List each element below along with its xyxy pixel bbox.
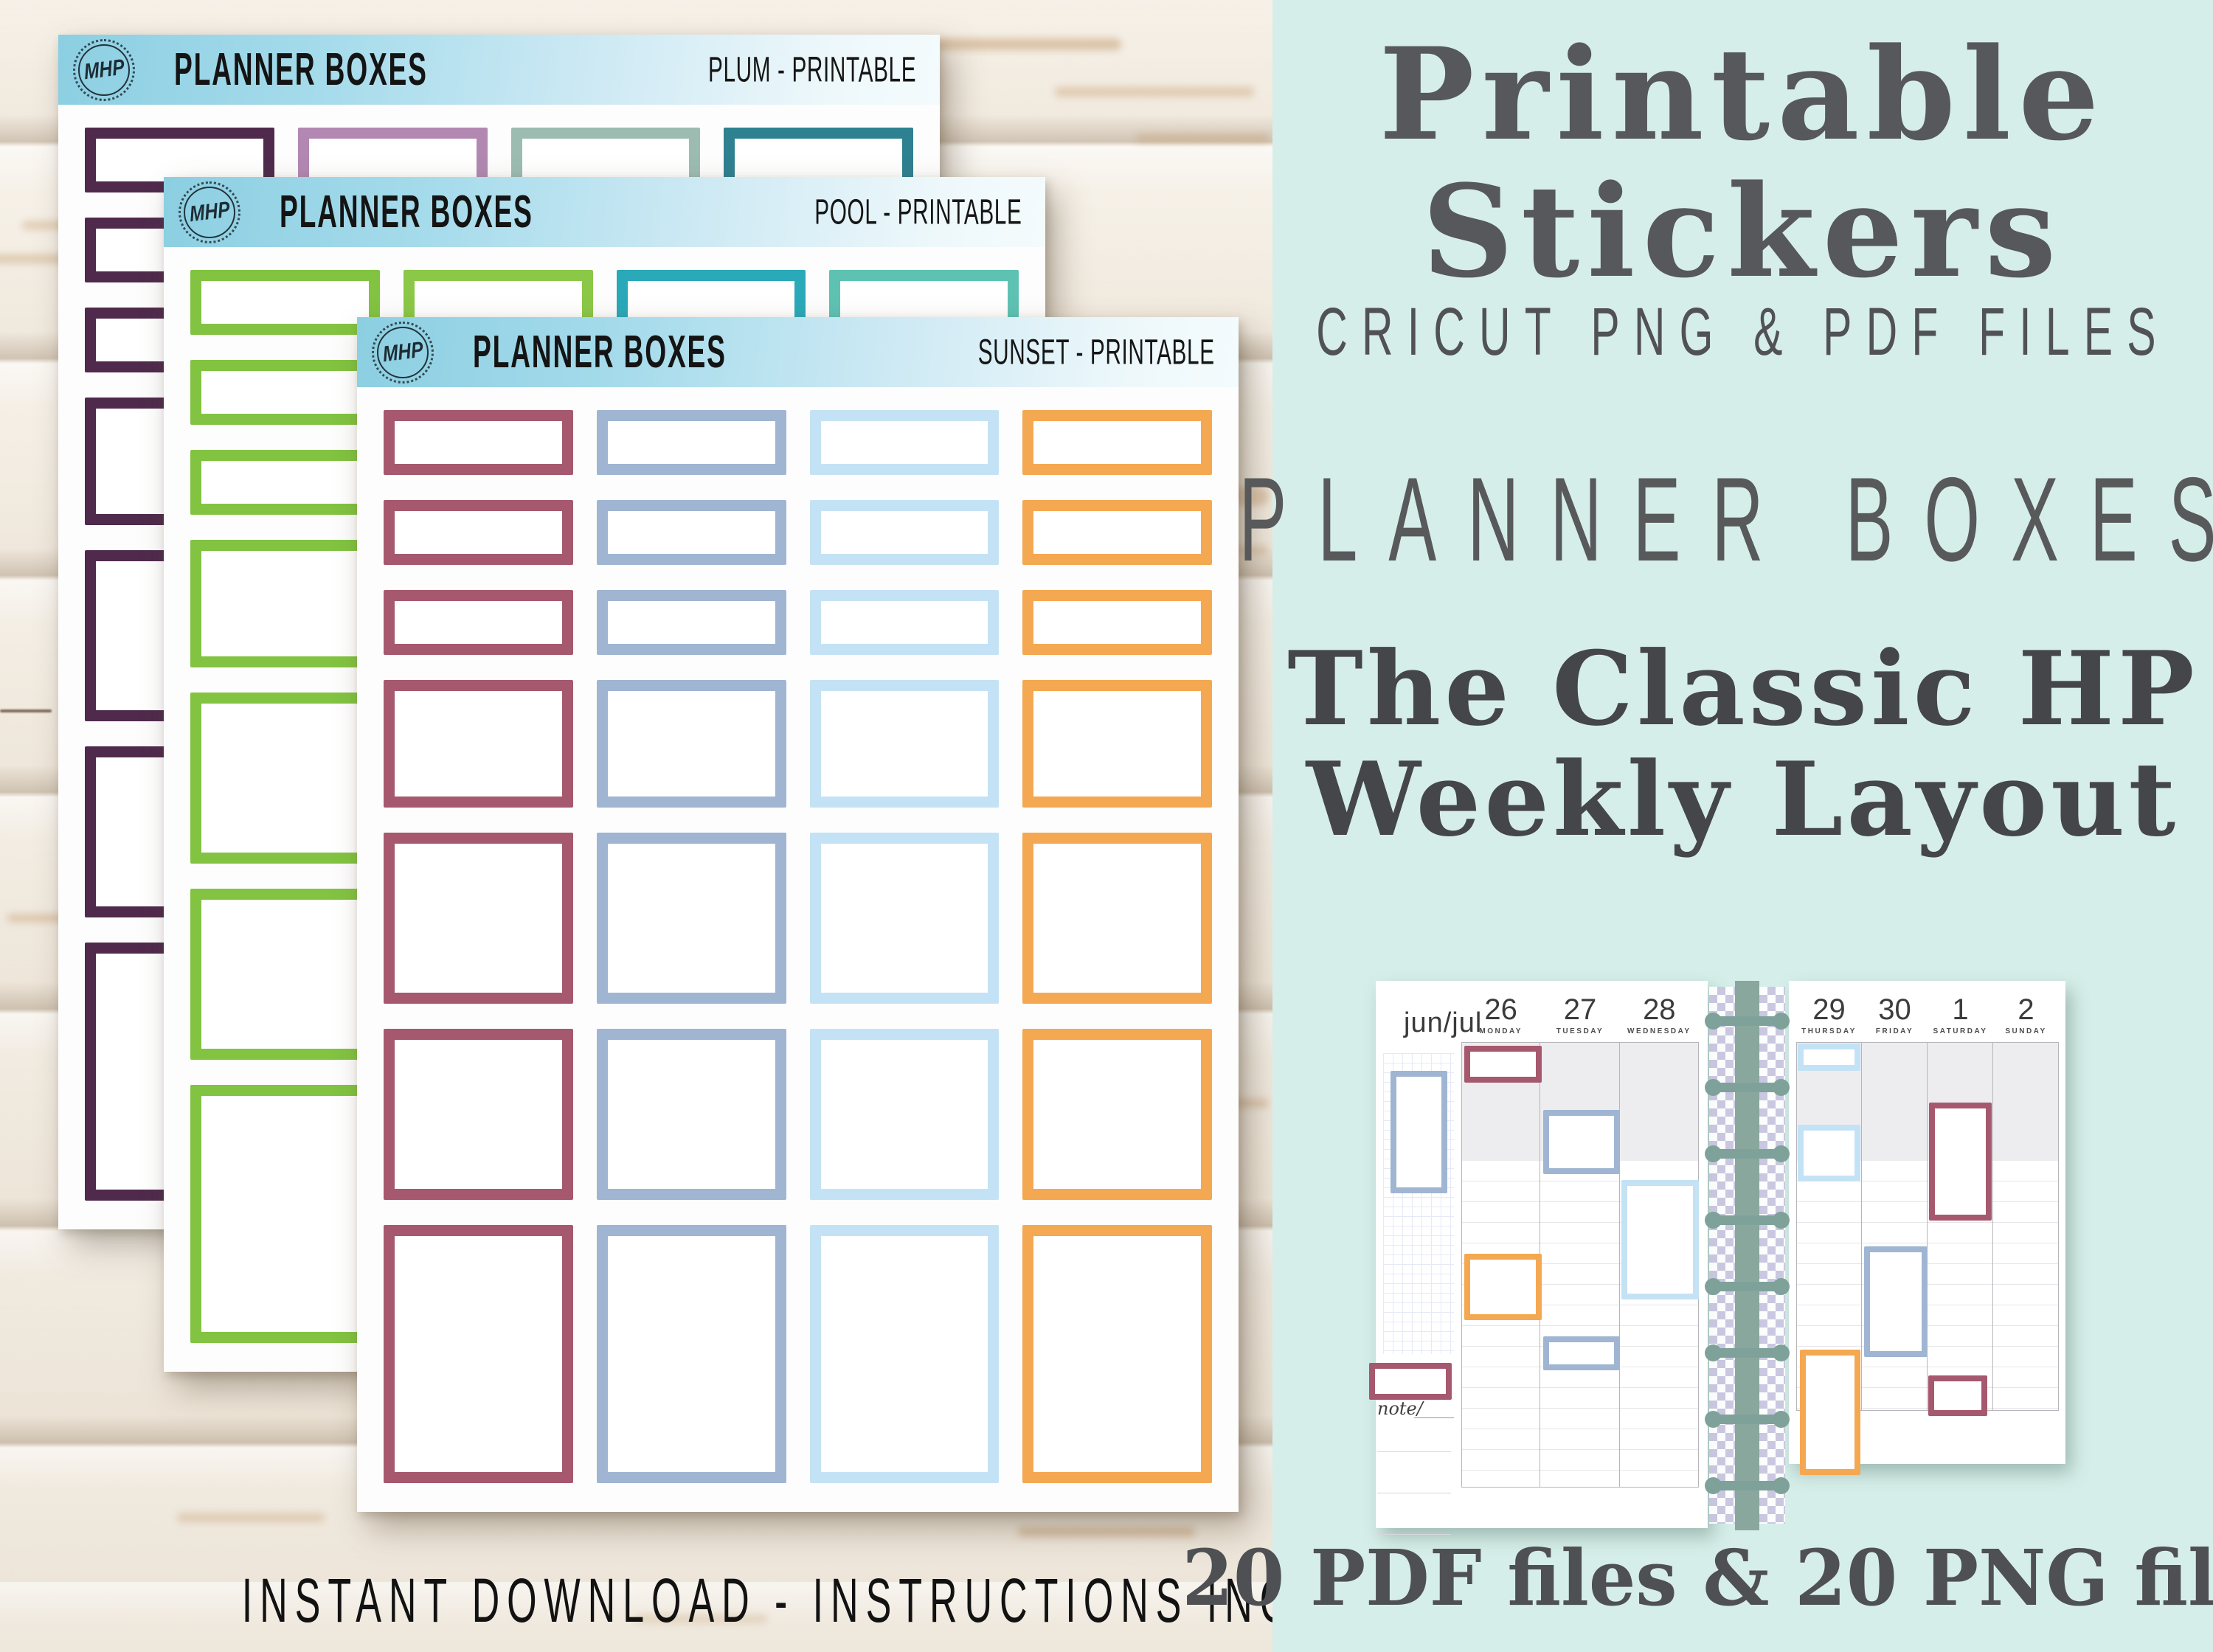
info-panel: Printable Stickers CRICUT PNG & PDF FILE… (1272, 0, 2213, 1652)
product-name: PLANNER BOXES (1239, 451, 2213, 589)
sticker-box (384, 500, 573, 565)
sticker-box (190, 450, 380, 515)
day-name: SATURDAY (1928, 1027, 1993, 1042)
sticker-row (384, 833, 1212, 1004)
binding-disc (1708, 1415, 1787, 1424)
washi-tape-right (1759, 987, 1785, 1524)
panel-subtitle: CRICUT PNG & PDF FILES (1316, 294, 2169, 371)
panel-title-line1: Printable (1272, 19, 2213, 169)
sample-sticker-halfbox (1543, 1336, 1620, 1370)
sticker-row (384, 500, 1212, 565)
sheet-title: PLANNER BOXES (473, 326, 727, 378)
sticker-box (384, 410, 573, 475)
note-line (1414, 1417, 1454, 1418)
sticker-box (190, 1085, 380, 1343)
logo-monogram: MHP (188, 197, 230, 227)
date-number: 26 (1461, 992, 1540, 1027)
day-name: MONDAY (1461, 1027, 1540, 1042)
wood-grain-streak (1136, 134, 1269, 142)
sample-sticker-halfbox (1369, 1363, 1452, 1400)
washi-tape-left (1709, 987, 1735, 1524)
sticker-box (1022, 833, 1212, 1004)
wood-grain-streak (177, 1513, 325, 1522)
wood-grain-streak (1018, 1527, 1195, 1537)
day-name: TUESDAY (1540, 1027, 1619, 1042)
sticker-box (810, 590, 1000, 655)
sample-sticker-halfbox (1798, 1044, 1860, 1071)
binding-disc (1708, 1481, 1787, 1490)
file-count-footer: 20 PDF files & 20 PNG files (1182, 1533, 2213, 1623)
mhp-logo-icon: MHP (377, 327, 429, 378)
logo-monogram: MHP (381, 337, 423, 367)
sticker-box (810, 1225, 1000, 1483)
planner-mockup: jun/jul note/ 26MONDAY27TUESDAY28WEDNESD… (1376, 981, 2113, 1530)
date-number: 29 (1796, 992, 1862, 1027)
product-listing-image: MHP PLANNER BOXES PLUM - PRINTABLE MHP P… (0, 0, 2213, 1652)
sticker-box (190, 693, 380, 864)
sticker-box (384, 1029, 573, 1200)
sample-sticker-fullbox (1929, 1103, 1992, 1221)
binding-disc (1708, 1282, 1787, 1291)
date-number: 1 (1928, 992, 1993, 1027)
sidebar-rule (1377, 1493, 1451, 1493)
day-name: THURSDAY (1796, 1027, 1862, 1042)
sticker-box (810, 410, 1000, 475)
sticker-sheet-sunset: MHP PLANNER BOXES SUNSET - PRINTABLE (357, 317, 1239, 1512)
mhp-logo-icon: MHP (78, 44, 130, 96)
sticker-box (597, 680, 786, 808)
sample-sticker-fullbox (1621, 1180, 1699, 1299)
sticker-box (190, 889, 380, 1060)
sticker-row (384, 1225, 1212, 1483)
sheet-subtitle: POOL - PRINTABLE (814, 192, 1022, 232)
day-column-body (1992, 1042, 2059, 1411)
sticker-row (384, 680, 1212, 808)
sticker-box (597, 500, 786, 565)
sticker-box (1022, 680, 1212, 808)
sample-sticker-halfbox (1798, 1125, 1860, 1181)
panel-title-line2: Stickers (1272, 156, 2213, 306)
date-number: 2 (1993, 992, 2059, 1027)
binding-disc (1708, 1016, 1787, 1026)
sticker-box (810, 680, 1000, 808)
day-column-body (1540, 1042, 1619, 1488)
day-name: FRIDAY (1862, 1027, 1928, 1042)
logo-monogram: MHP (83, 55, 125, 85)
sticker-box (384, 680, 573, 808)
sidebar-rule (1377, 1451, 1451, 1452)
sticker-box (1022, 590, 1212, 655)
tagline-line1: The Classic HP (1272, 628, 2213, 749)
day-name: SUNDAY (1993, 1027, 2059, 1042)
sample-sticker-halfbox (1464, 1254, 1542, 1320)
sheet-header: MHP PLANNER BOXES SUNSET - PRINTABLE (357, 317, 1239, 387)
date-number: 27 (1540, 992, 1619, 1027)
note-label: note/ (1377, 1398, 1423, 1419)
sticker-box (384, 1225, 573, 1483)
sticker-grid (384, 410, 1212, 1508)
sticker-box (384, 833, 573, 1004)
sticker-row (384, 590, 1212, 655)
sheet-header: MHP PLANNER BOXES POOL - PRINTABLE (164, 177, 1045, 247)
sheet-title: PLANNER BOXES (280, 186, 533, 238)
wood-grain-streak (1055, 87, 1254, 97)
tagline-line2: Weekly Layout (1272, 739, 2213, 859)
wood-grain-streak (0, 254, 66, 263)
binding-disc (1708, 1215, 1787, 1225)
sticker-box (190, 360, 380, 425)
sticker-box (597, 1225, 786, 1483)
sticker-box (597, 1029, 786, 1200)
sticker-row (384, 1029, 1212, 1200)
binding-disc (1708, 1348, 1787, 1358)
sticker-box (384, 590, 573, 655)
instant-download-caption: INSTANT DOWNLOAD - INSTRUCTIONS INCLUDED (242, 1565, 1031, 1637)
sheet-subtitle: PLUM - PRINTABLE (708, 49, 916, 90)
sample-sticker-fullbox (1864, 1246, 1928, 1357)
wood-seam (0, 709, 52, 712)
sticker-box (597, 590, 786, 655)
weekday-column: 2SUNDAY (1993, 992, 2059, 1411)
sticker-box (597, 410, 786, 475)
day-column-body (1927, 1042, 1993, 1411)
mhp-logo-icon: MHP (184, 187, 235, 238)
sticker-box (810, 1029, 1000, 1200)
day-name: WEDNESDAY (1620, 1027, 1699, 1042)
binding-spine (1735, 981, 1759, 1530)
sample-sticker-fullbox (1800, 1350, 1860, 1475)
wood-grain-streak (937, 38, 1121, 50)
sample-sticker-halfbox (1464, 1046, 1542, 1083)
sticker-box (190, 270, 380, 335)
sample-sticker-halfbox (1543, 1110, 1620, 1174)
sample-sticker-fullbox (1391, 1071, 1447, 1193)
sticker-row (384, 410, 1212, 475)
binding-disc (1708, 1149, 1787, 1159)
sticker-box (1022, 1225, 1212, 1483)
sheet-title: PLANNER BOXES (174, 44, 428, 96)
date-number: 30 (1862, 992, 1928, 1027)
sticker-box (1022, 1029, 1212, 1200)
sheet-subtitle: SUNSET - PRINTABLE (978, 332, 1215, 372)
sample-sticker-halfbox (1928, 1375, 1987, 1416)
sticker-box (190, 540, 380, 667)
binding-disc (1708, 1083, 1787, 1092)
sticker-box (810, 500, 1000, 565)
sticker-box (810, 833, 1000, 1004)
sticker-box (1022, 500, 1212, 565)
weekday-column: 27TUESDAY (1540, 992, 1619, 1488)
date-number: 28 (1620, 992, 1699, 1027)
sheet-header: MHP PLANNER BOXES PLUM - PRINTABLE (58, 35, 940, 105)
sticker-box (1022, 410, 1212, 475)
sticker-box (597, 833, 786, 1004)
